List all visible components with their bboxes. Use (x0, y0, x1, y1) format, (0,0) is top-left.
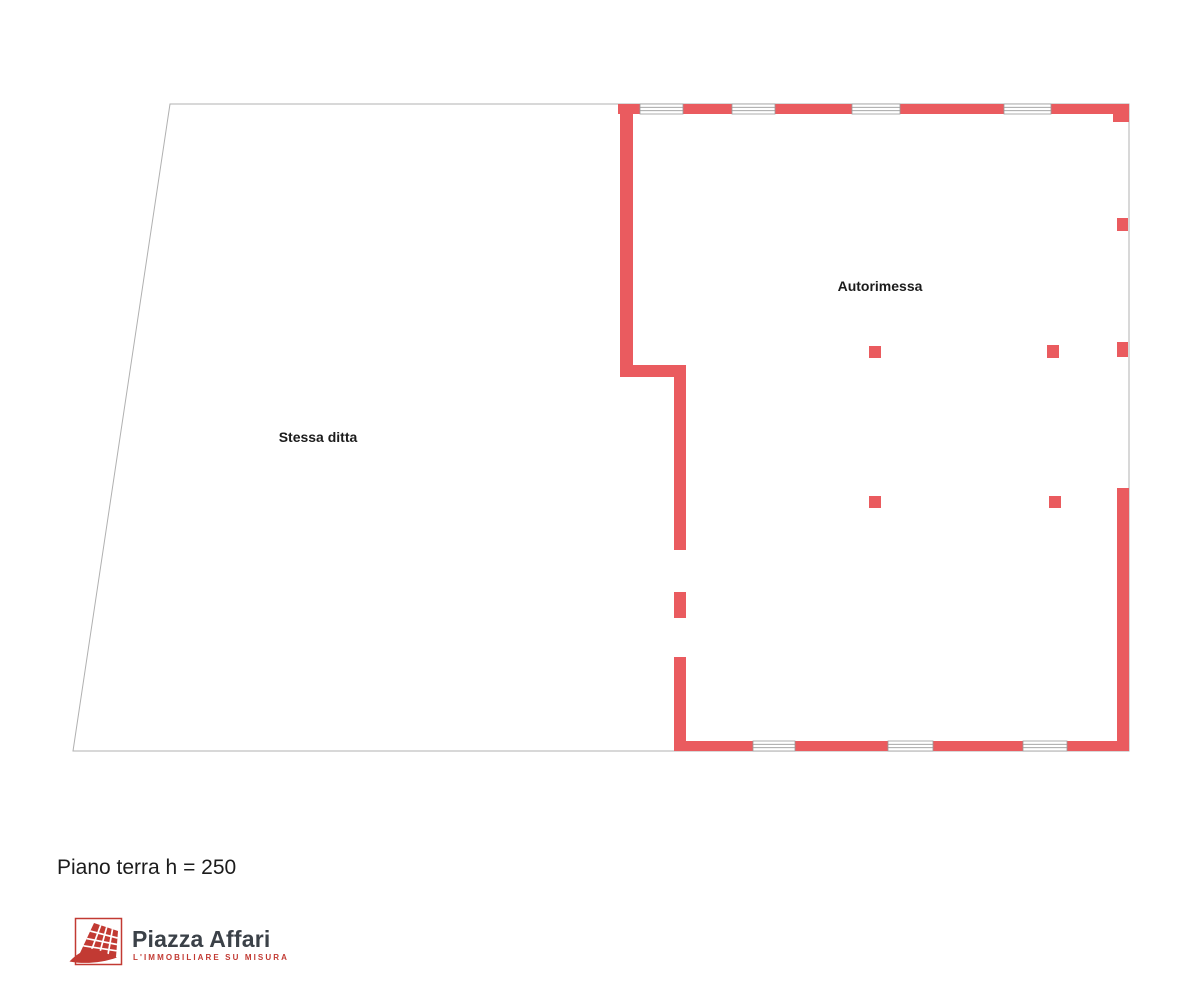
wall-door-jamb (674, 592, 686, 618)
window (640, 104, 683, 114)
wall-bottom-segment (795, 741, 888, 751)
window (888, 741, 933, 751)
window (852, 104, 900, 114)
logo: Piazza Affari L'IMMOBILIARE SU MISURA (70, 919, 289, 965)
window (1004, 104, 1051, 114)
floorplan-drawing: Autorimessa Stessa ditta Piano terra h =… (0, 0, 1200, 1000)
wall-bottom-segment (674, 741, 753, 751)
wall-left-upper (620, 104, 633, 377)
pillar (1049, 496, 1061, 508)
window (732, 104, 775, 114)
window (1023, 741, 1067, 751)
floorplan-page: Autorimessa Stessa ditta Piano terra h =… (0, 0, 1200, 1000)
wall-left-mid (674, 365, 686, 550)
parcel-outline (73, 104, 1129, 751)
logo-tagline: L'IMMOBILIARE SU MISURA (133, 953, 289, 962)
logo-name: Piazza Affari (132, 926, 271, 952)
pillar (869, 346, 881, 358)
wall-top-segment (900, 104, 1004, 114)
wall-top-segment (775, 104, 852, 114)
wall-top-right-tab (1113, 114, 1129, 122)
window (753, 741, 795, 751)
wall-pillar (1117, 342, 1128, 357)
wall-left-lower (674, 657, 686, 751)
wall-right-lower (1117, 488, 1129, 751)
floor-caption: Piano terra h = 250 (57, 856, 236, 879)
garage-room-label: Autorimessa (838, 278, 923, 294)
wall-top-segment (683, 104, 732, 114)
wall-top-segment (1051, 104, 1129, 114)
wall-bottom-segment (933, 741, 1023, 751)
pillar (869, 496, 881, 508)
pillar (1047, 345, 1059, 358)
left-area-room-label: Stessa ditta (279, 429, 358, 445)
wall-pillar (1117, 218, 1128, 231)
